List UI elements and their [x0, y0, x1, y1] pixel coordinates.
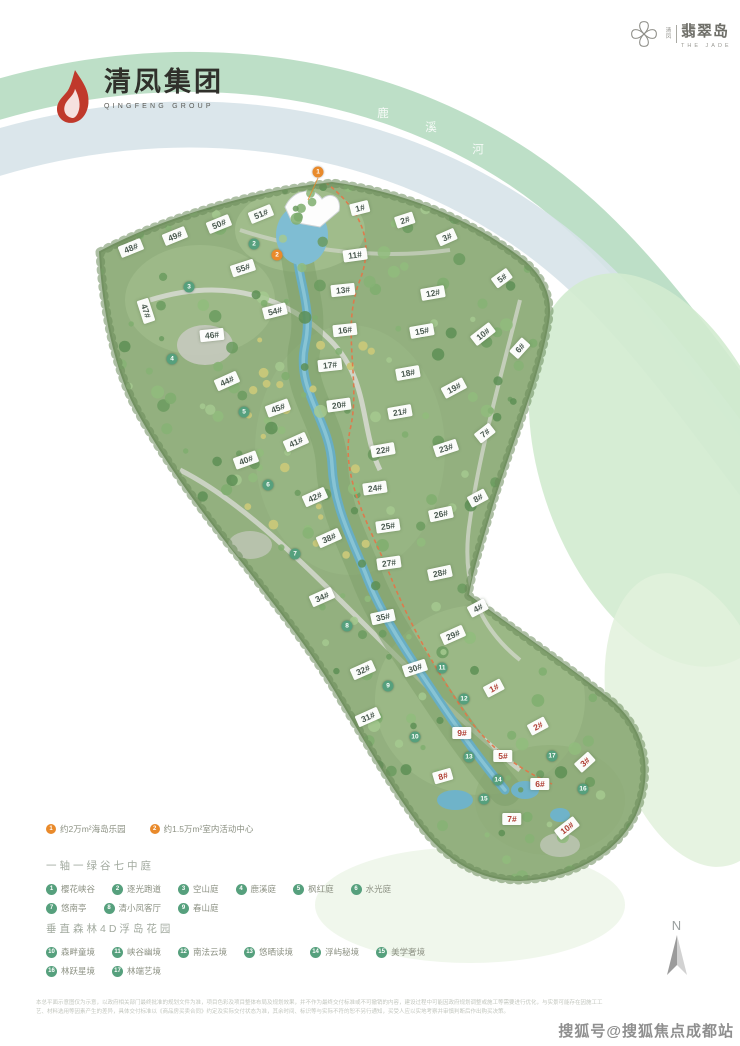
- legend-item: 5枫红庭: [293, 883, 334, 895]
- legend-marker-icon: 15: [376, 947, 387, 958]
- legend-marker-icon: 3: [178, 884, 189, 895]
- qingfeng-group-logo: 清凤集团 QINGFENG GROUP: [52, 66, 224, 128]
- legend-section-garden: 垂直森林4D浮岛花园10森畔童境11峡谷幽境12南法云境13悠晒读境14浮屿秘境…: [46, 921, 425, 984]
- amenity-item: 1约2万m²海岛乐园: [46, 823, 126, 835]
- legend-label: 悠南亭: [61, 902, 87, 914]
- legend-label: 春山庭: [193, 902, 219, 914]
- legend-item: 7悠南亭: [46, 902, 87, 914]
- thejade-logo: 清凤 翡翠岛 THE JADE: [628, 18, 732, 50]
- legend-label: 悠晒读境: [259, 946, 293, 958]
- compass-n-label: N: [662, 918, 692, 933]
- amenity-label: 约1.5万m²室内活动中心: [164, 823, 254, 835]
- legend-item: 15美学奢境: [376, 946, 425, 958]
- legend-marker-icon: 13: [244, 947, 255, 958]
- legend-label: 鹿溪庭: [251, 883, 277, 895]
- legend-item: 16林跃星境: [46, 965, 95, 977]
- compass: N: [662, 918, 692, 977]
- legend-item: 8清小凤客厅: [104, 902, 162, 914]
- legend-label: 林跃星境: [61, 965, 95, 977]
- legend-marker-icon: 2: [112, 884, 123, 895]
- legend-marker-icon: 6: [351, 884, 362, 895]
- legend-item: 2逐光跑道: [112, 883, 161, 895]
- legend-label: 美学奢境: [391, 946, 425, 958]
- legend-item: 4鹿溪庭: [236, 883, 277, 895]
- project-name-cn: 翡翠岛: [681, 20, 732, 41]
- legend-marker-icon: 5: [293, 884, 304, 895]
- legend-label: 空山庭: [193, 883, 219, 895]
- legend-row: 7悠南亭8清小凤客厅9春山庭: [46, 902, 391, 914]
- disclaimer: 本总平面示意图仅为示意，以政府相关部门最终批准的规划文件为准，项目色彩及项目整体…: [36, 999, 708, 1016]
- site-plan-page: 鹿溪河景观带 48#49#50#51#55#54#47#46#44#45#40#…: [0, 0, 740, 1046]
- legend-marker-icon: 17: [112, 966, 123, 977]
- brand-prefix: 清凤: [665, 28, 672, 40]
- compass-arrow-icon: [662, 933, 692, 977]
- legend-item: 3空山庭: [178, 883, 219, 895]
- legend-section-title: 垂直森林4D浮岛花园: [46, 921, 425, 936]
- legend-item: 14浮屿秘境: [310, 946, 359, 958]
- legend-item: 12南法云境: [178, 946, 227, 958]
- legend-label: 樱花峡谷: [61, 883, 95, 895]
- amenity-marker-icon: 1: [46, 824, 56, 834]
- legend-label: 林端艺境: [127, 965, 161, 977]
- project-name-en: THE JADE: [681, 43, 732, 49]
- legend-label: 峡谷幽境: [127, 946, 161, 958]
- legend-label: 森畔童境: [61, 946, 95, 958]
- watermark: 搜狐号@搜狐焦点成都站: [558, 1020, 734, 1041]
- legend-marker-icon: 1: [46, 884, 57, 895]
- divider: [676, 25, 677, 43]
- amenity-item: 2约1.5万m²室内活动中心: [150, 823, 254, 835]
- legend-label: 清小凤客厅: [119, 902, 162, 914]
- amenity-marker-icon: 2: [150, 824, 160, 834]
- legend-item: 6水光庭: [351, 883, 392, 895]
- amenity-legend: 1约2万m²海岛乐园2约1.5万m²室内活动中心: [46, 823, 253, 835]
- legend-marker-icon: 12: [178, 947, 189, 958]
- legend-marker-icon: 8: [104, 903, 115, 914]
- legend-marker-icon: 9: [178, 903, 189, 914]
- legend-marker-icon: 14: [310, 947, 321, 958]
- legend-label: 枫红庭: [308, 883, 334, 895]
- company-name-en: QINGFENG GROUP: [104, 103, 224, 110]
- knot-icon: [628, 18, 660, 50]
- legend-row: 16林跃星境17林端艺境: [46, 965, 425, 977]
- legend-section-title: 一轴一绿谷七中庭: [46, 858, 391, 873]
- legend-marker-icon: 10: [46, 947, 57, 958]
- legend-marker-icon: 11: [112, 947, 123, 958]
- legend-label: 南法云境: [193, 946, 227, 958]
- legend-label: 水光庭: [366, 883, 392, 895]
- legend-item: 13悠晒读境: [244, 946, 293, 958]
- legend-label: 逐光跑道: [127, 883, 161, 895]
- legend-item: 10森畔童境: [46, 946, 95, 958]
- legend-row: 1樱花峡谷2逐光跑道3空山庭4鹿溪庭5枫红庭6水光庭: [46, 883, 391, 895]
- legend-item: 9春山庭: [178, 902, 219, 914]
- company-name-cn: 清凤集团: [104, 66, 224, 100]
- legend-item: 1樱花峡谷: [46, 883, 95, 895]
- legend-marker-icon: 16: [46, 966, 57, 977]
- legend-marker-icon: 7: [46, 903, 57, 914]
- amenity-label: 约2万m²海岛乐园: [60, 823, 126, 835]
- legend-item: 17林端艺境: [112, 965, 161, 977]
- disclaimer-line-2: 艺、材料选用等因素产生的差异，具体交付标准以《商品房买卖合同》约定及实际交付状态…: [36, 1008, 708, 1017]
- disclaimer-line-1: 本总平面示意图仅为示意，以政府相关部门最终批准的规划文件为准，项目色彩及项目整体…: [36, 999, 708, 1008]
- legend-section-courtyards: 一轴一绿谷七中庭1樱花峡谷2逐光跑道3空山庭4鹿溪庭5枫红庭6水光庭7悠南亭8清…: [46, 858, 391, 921]
- legend-label: 浮屿秘境: [325, 946, 359, 958]
- flame-icon: [52, 66, 98, 128]
- legend-marker-icon: 4: [236, 884, 247, 895]
- legend-item: 11峡谷幽境: [112, 946, 161, 958]
- legend-row: 10森畔童境11峡谷幽境12南法云境13悠晒读境14浮屿秘境15美学奢境: [46, 946, 425, 958]
